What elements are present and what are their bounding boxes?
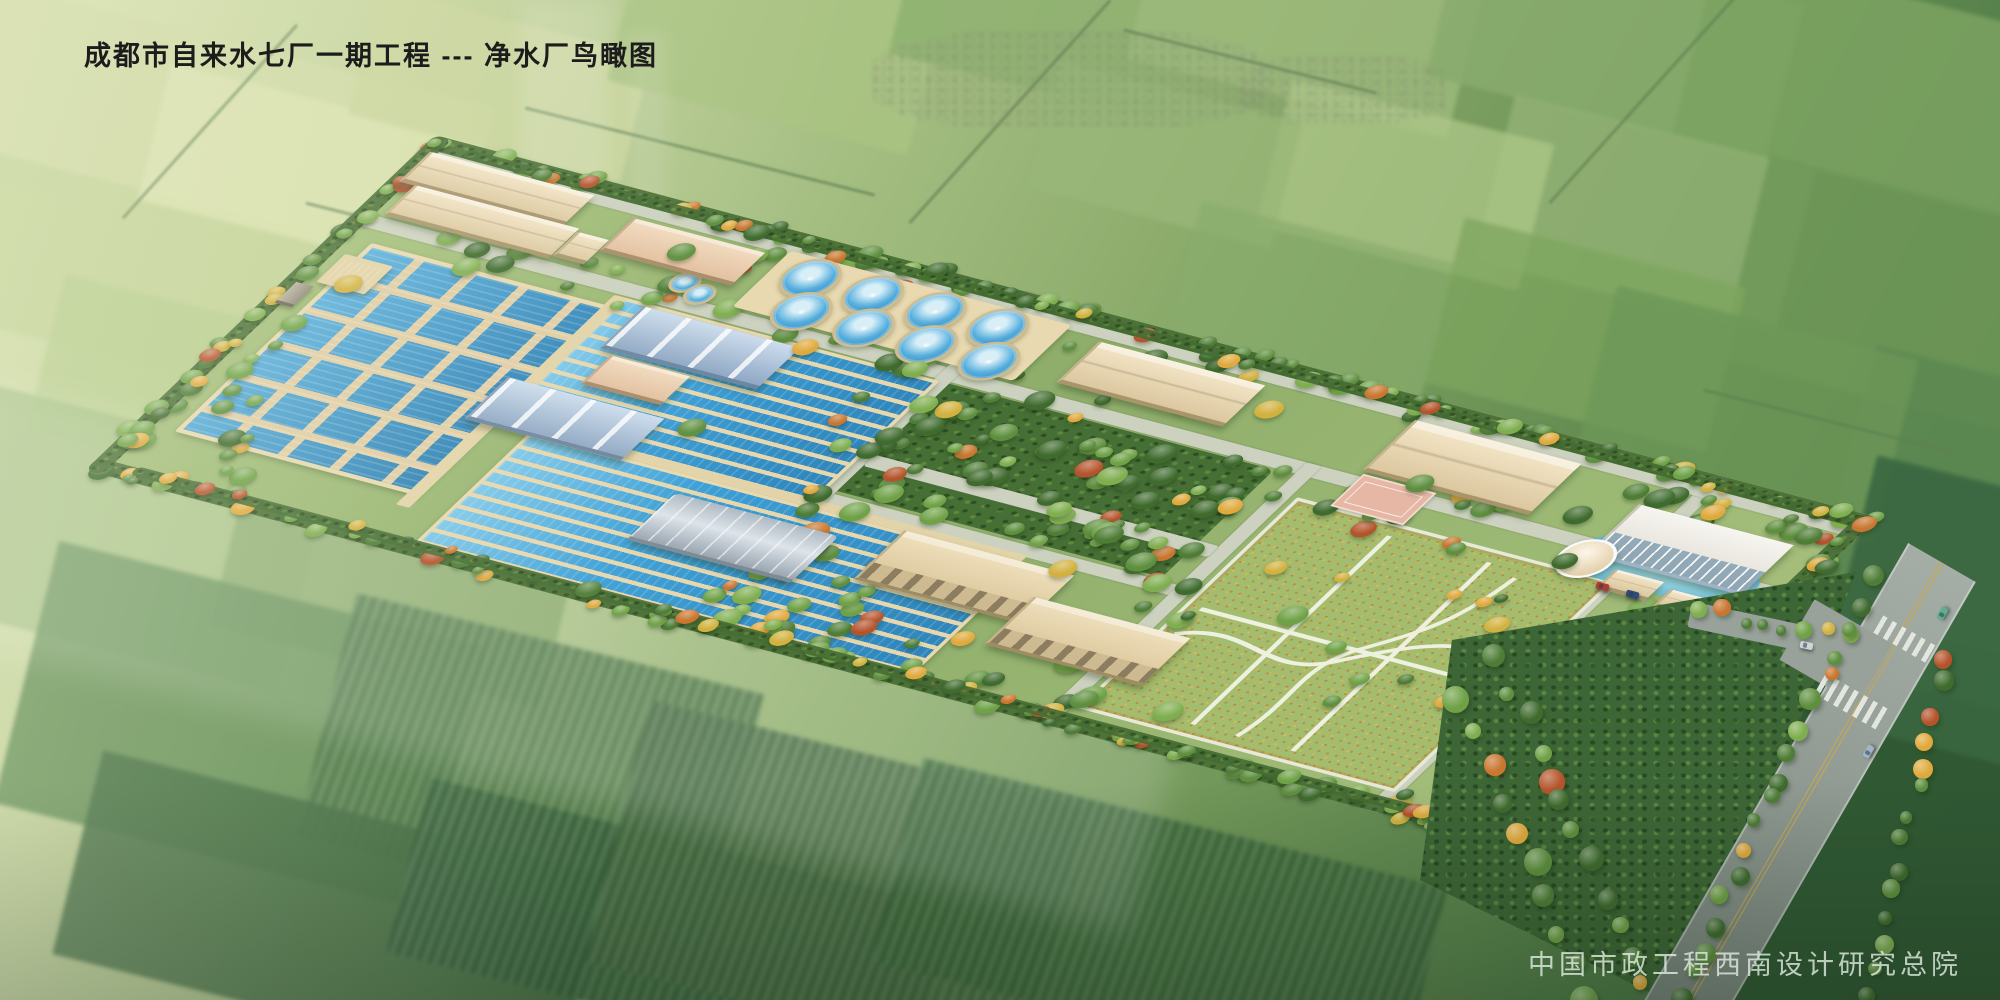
car bbox=[1595, 581, 1609, 591]
page-title: 成都市自来水七厂一期工程 --- 净水厂鸟瞰图 bbox=[84, 34, 658, 73]
car-windshield bbox=[1939, 612, 1945, 618]
design-institute-watermark: 中国市政工程西南设计研究总院 bbox=[1528, 943, 1962, 982]
car bbox=[1799, 641, 1813, 651]
car-windshield bbox=[1865, 750, 1871, 756]
aerial-rendering: 成都市自来水七厂一期工程 --- 净水厂鸟瞰图 中国市政工程西南设计研究总院 bbox=[0, 0, 2000, 1000]
car bbox=[1862, 744, 1875, 759]
car bbox=[1625, 589, 1639, 599]
car-group bbox=[0, 0, 2000, 1000]
car bbox=[1936, 606, 1949, 621]
car-windshield bbox=[1628, 591, 1633, 597]
car-windshield bbox=[1598, 583, 1603, 589]
car-windshield bbox=[1803, 642, 1808, 648]
